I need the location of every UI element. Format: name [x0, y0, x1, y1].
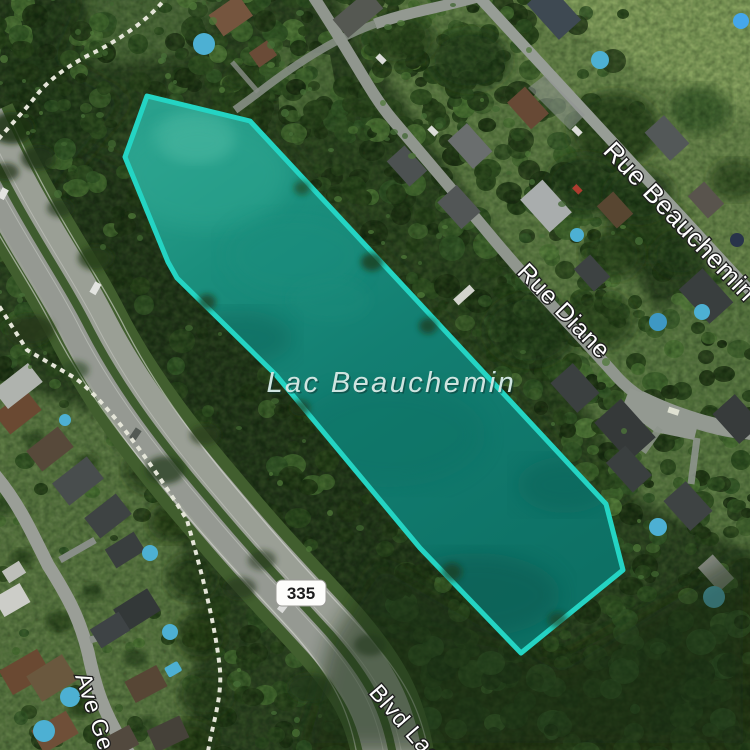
svg-text:Lac Beauchemin: Lac Beauchemin [267, 367, 517, 399]
svg-text:335: 335 [287, 584, 315, 603]
